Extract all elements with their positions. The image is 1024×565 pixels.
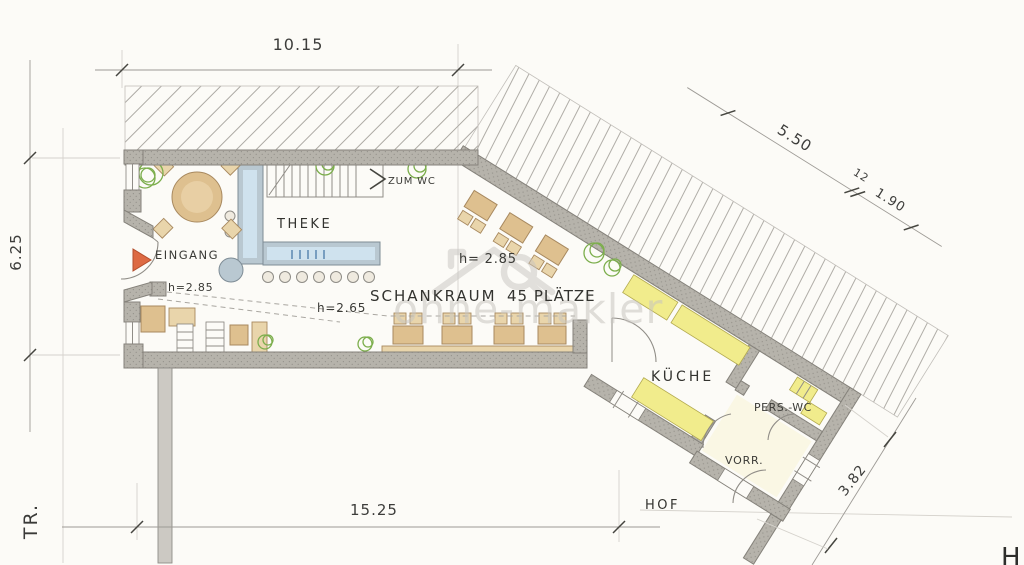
label-kueche: KÜCHE (651, 367, 714, 385)
label-schankraum-seats: 45 PLÄTZE (507, 286, 596, 305)
note-height-eingang: h=2.85 (168, 281, 213, 294)
dim-left-value: 6.25 (7, 233, 25, 270)
label-theke: THEKE (276, 217, 332, 232)
label-zum-wc: ZUM WC (388, 176, 436, 187)
note-height-right: h= 2.85 (459, 252, 517, 267)
note-height-left: h=2.65 (317, 301, 366, 315)
label-schankraum: SCHANKRAUM (370, 287, 497, 305)
street-label: TR. (20, 503, 42, 540)
dim-bottom-value: 15.25 (350, 501, 398, 519)
floorplan-page: ohne-makler 10.15 6.25 15.25 5.50 12 1.9… (0, 0, 1024, 565)
label-vorrat: VORR. (725, 454, 763, 467)
label-pers-wc: PERS.-WC (754, 401, 812, 414)
neighbor-hatching-top (125, 86, 478, 150)
floorplan-drawing: ohne-makler 10.15 6.25 15.25 5.50 12 1.9… (0, 0, 1024, 565)
wall-top (125, 150, 478, 165)
wall-bottom (125, 352, 587, 368)
label-hof: HOF (645, 498, 680, 513)
staircase (267, 164, 385, 197)
dim-top-value: 10.15 (273, 35, 324, 54)
label-eingang: EINGANG (155, 248, 219, 262)
wall-street-side (158, 368, 172, 563)
corner-letter: H (1001, 543, 1021, 565)
